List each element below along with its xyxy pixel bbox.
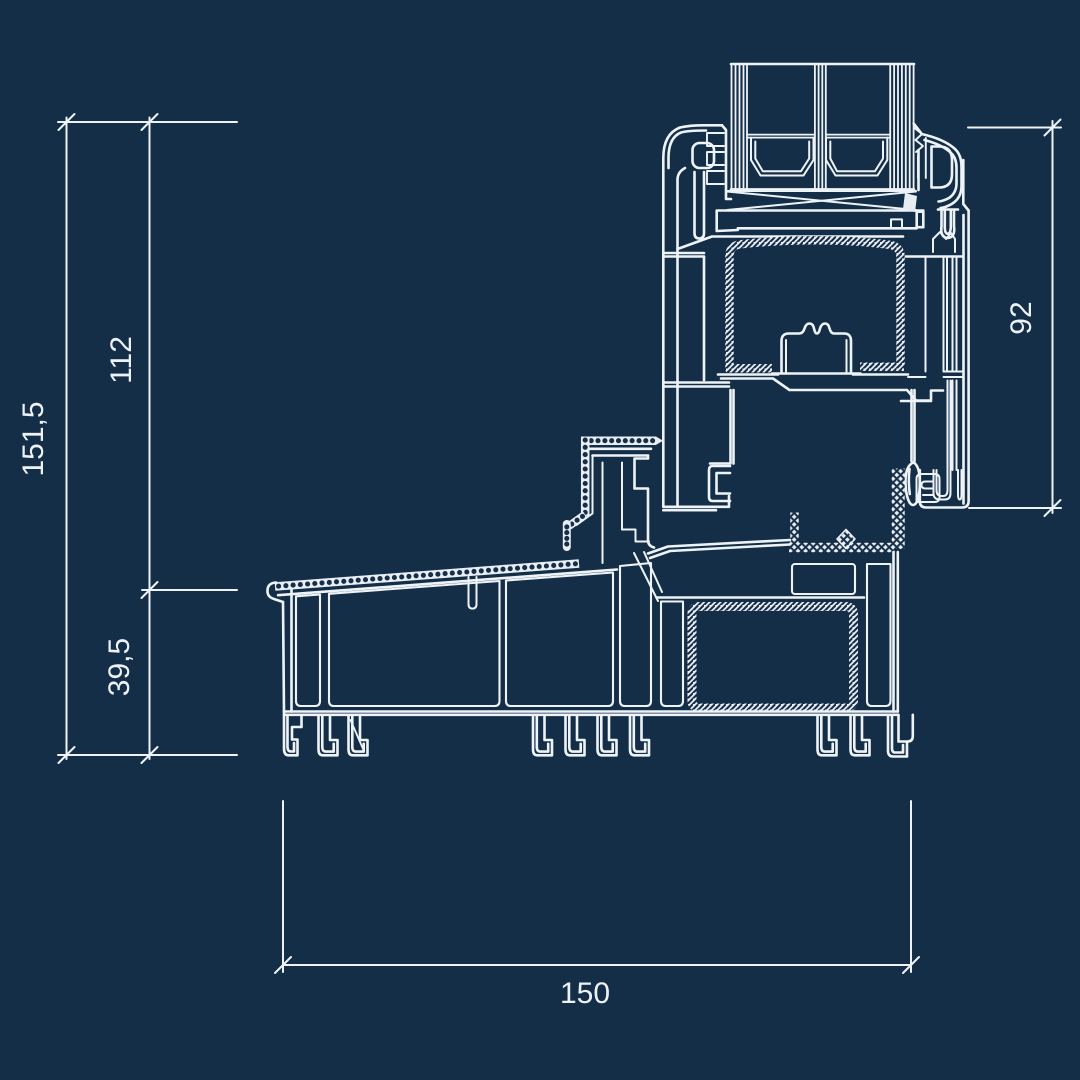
svg-text:151,5: 151,5 (17, 401, 50, 476)
svg-text:112: 112 (105, 336, 138, 384)
svg-text:150: 150 (560, 977, 610, 1010)
svg-text:39,5: 39,5 (103, 638, 136, 696)
svg-text:92: 92 (1005, 301, 1038, 334)
